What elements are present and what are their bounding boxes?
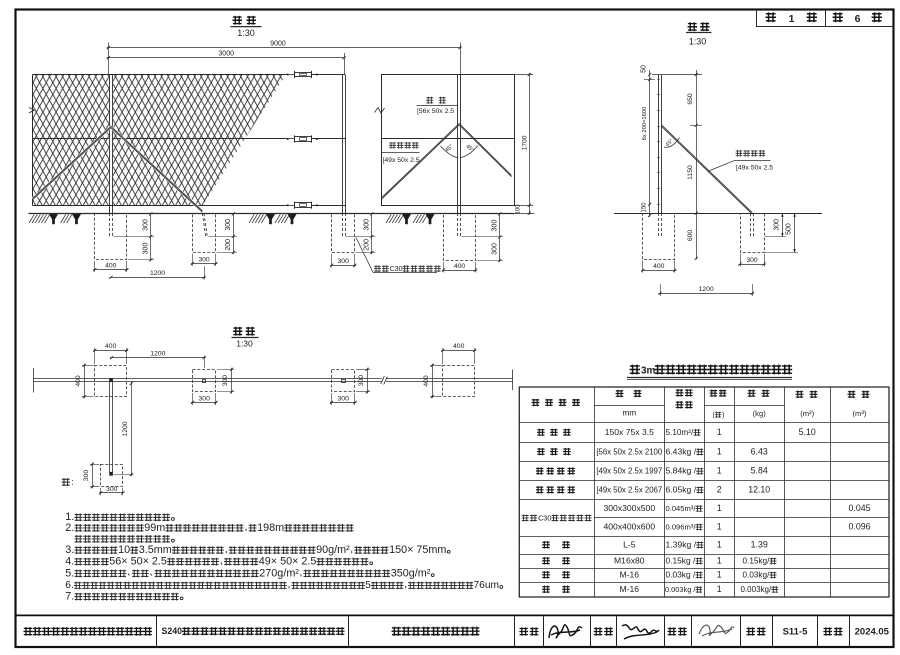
svg-text:5.10m²/: 5.10m²/	[666, 428, 694, 437]
svg-text:[56x 50x 2.5x 2100: [56x 50x 2.5x 2100	[596, 447, 663, 456]
svg-text:0.03kg/: 0.03kg/	[743, 571, 771, 580]
svg-text:49× 50× 2.5: 49× 50× 2.5	[259, 556, 317, 568]
svg-text:1.39: 1.39	[751, 540, 768, 550]
svg-text:5.10: 5.10	[799, 427, 816, 437]
svg-text:5.: 5.	[65, 567, 74, 579]
svg-text:1: 1	[717, 556, 722, 566]
svg-text:100: 100	[515, 204, 521, 215]
svg-text:1: 1	[717, 503, 722, 513]
svg-text:1200: 1200	[150, 270, 165, 277]
svg-text:300x300x500: 300x300x500	[603, 503, 655, 513]
svg-text:10: 10	[118, 544, 130, 556]
svg-text:500: 500	[786, 223, 793, 235]
svg-text:1200: 1200	[150, 351, 165, 358]
svg-text:300: 300	[338, 258, 350, 265]
svg-text:2.: 2.	[65, 522, 74, 534]
svg-text:300: 300	[746, 257, 758, 264]
svg-text:6.43: 6.43	[751, 446, 768, 456]
svg-text:0.003kg /: 0.003kg /	[665, 585, 696, 594]
svg-text:8x 200=1600: 8x 200=1600	[642, 107, 648, 141]
svg-text:350g/m²: 350g/m²	[391, 567, 431, 579]
svg-text:400: 400	[454, 263, 466, 270]
svg-text:6.43kg /: 6.43kg /	[666, 446, 697, 456]
svg-text:400: 400	[105, 343, 117, 350]
svg-text:300: 300	[773, 219, 780, 231]
svg-text:300: 300	[491, 220, 498, 232]
svg-text:L-5: L-5	[623, 540, 636, 550]
svg-text:0.15kg/: 0.15kg/	[743, 557, 771, 566]
svg-text:2024.05: 2024.05	[855, 627, 890, 638]
svg-text:76um: 76um	[474, 580, 499, 591]
svg-text:mm: mm	[622, 408, 636, 418]
svg-text:90g/m²: 90g/m²	[316, 544, 350, 556]
svg-text:M-16: M-16	[620, 570, 640, 580]
svg-text:300: 300	[338, 396, 350, 403]
svg-text:0.045: 0.045	[848, 503, 870, 513]
svg-text:3.: 3.	[65, 544, 74, 556]
svg-text:12.10: 12.10	[748, 485, 770, 495]
svg-text:5.84: 5.84	[751, 466, 768, 476]
svg-text:0.003kg/: 0.003kg/	[741, 585, 772, 594]
svg-text::: :	[71, 477, 73, 487]
svg-text:400: 400	[653, 263, 665, 270]
svg-text:[49x 50x 2.5x 1997: [49x 50x 2.5x 1997	[596, 467, 662, 476]
svg-text:(m³): (m³)	[853, 409, 867, 418]
svg-text:1200: 1200	[699, 286, 714, 293]
svg-text:1150: 1150	[687, 165, 694, 180]
svg-text:300: 300	[363, 219, 370, 231]
svg-text:1: 1	[717, 446, 722, 456]
svg-text:4.: 4.	[65, 556, 74, 568]
svg-text:C30: C30	[390, 266, 403, 273]
svg-text:270g/m²: 270g/m²	[259, 567, 299, 579]
svg-text:3m: 3m	[641, 365, 656, 376]
svg-text:150× 75mm: 150× 75mm	[389, 544, 446, 556]
svg-text:[49x 50x 2.5: [49x 50x 2.5	[383, 157, 420, 164]
svg-text:400: 400	[105, 263, 117, 270]
svg-text:5: 5	[365, 580, 371, 591]
svg-text:400x400x600: 400x400x600	[603, 522, 655, 532]
svg-text:[49x 50x 2.5x 2067: [49x 50x 2.5x 2067	[596, 486, 662, 495]
svg-text:2: 2	[717, 485, 722, 495]
svg-text:300: 300	[142, 219, 149, 231]
svg-text:50: 50	[641, 65, 648, 73]
svg-text:1:30: 1:30	[237, 28, 255, 38]
svg-text:1: 1	[717, 522, 722, 532]
svg-text:7.: 7.	[65, 591, 74, 603]
svg-text:200: 200	[363, 239, 370, 251]
svg-text:M16x80: M16x80	[614, 556, 645, 566]
svg-text:0.045m³/: 0.045m³/	[666, 504, 697, 513]
svg-text:1700: 1700	[521, 135, 528, 150]
svg-text:300: 300	[198, 256, 210, 263]
svg-text:0.096m³/: 0.096m³/	[666, 523, 697, 532]
svg-text:1: 1	[717, 540, 722, 550]
svg-text:): )	[722, 412, 724, 419]
svg-text:0.15kg /: 0.15kg /	[666, 556, 696, 566]
svg-text:300: 300	[358, 375, 365, 387]
svg-text:0.096: 0.096	[848, 522, 870, 532]
svg-text:(m²): (m²)	[800, 409, 814, 418]
svg-text:(kg): (kg)	[753, 409, 767, 418]
svg-text:9000: 9000	[270, 40, 286, 47]
svg-text:6.05kg /: 6.05kg /	[666, 485, 697, 495]
svg-text:400: 400	[423, 375, 430, 387]
svg-text:150: 150	[642, 202, 648, 213]
svg-text:6: 6	[855, 13, 861, 25]
svg-text:1:30: 1:30	[689, 37, 707, 47]
svg-text:200: 200	[225, 239, 232, 251]
svg-text:600: 600	[687, 230, 694, 242]
svg-text:300: 300	[142, 243, 149, 255]
svg-text:1:30: 1:30	[236, 339, 253, 349]
svg-text:[49x 50x 2.5: [49x 50x 2.5	[736, 165, 773, 172]
svg-text:3.5mm: 3.5mm	[139, 544, 172, 556]
svg-text:1: 1	[717, 584, 722, 594]
svg-text:[56x 50x 2.5: [56x 50x 2.5	[417, 108, 454, 115]
svg-text:1.39kg /: 1.39kg /	[666, 540, 697, 550]
svg-text:S11-5: S11-5	[783, 627, 809, 638]
svg-text:1: 1	[789, 13, 795, 25]
svg-text:300: 300	[491, 243, 498, 255]
svg-text:650: 650	[687, 93, 694, 105]
svg-text:300: 300	[106, 486, 118, 493]
svg-text:1: 1	[717, 466, 722, 476]
svg-text:M-16: M-16	[620, 584, 640, 594]
svg-text:400: 400	[75, 375, 82, 387]
svg-text:1200: 1200	[122, 421, 129, 436]
svg-text:400: 400	[453, 343, 465, 350]
svg-text:300: 300	[83, 470, 90, 482]
svg-text:198m: 198m	[257, 522, 284, 534]
svg-text:0.03kg /: 0.03kg /	[666, 570, 696, 580]
svg-text:150x 75x 3.5: 150x 75x 3.5	[605, 427, 654, 437]
svg-text:300: 300	[199, 396, 211, 403]
svg-text:300: 300	[225, 219, 232, 231]
svg-text:300: 300	[222, 375, 229, 387]
svg-text:3000: 3000	[218, 51, 234, 58]
svg-text:C30: C30	[538, 514, 551, 523]
svg-text:56× 50× 2.5: 56× 50× 2.5	[109, 556, 167, 568]
svg-text:5.84kg /: 5.84kg /	[666, 466, 697, 476]
svg-text:1: 1	[717, 427, 722, 437]
svg-text:99m: 99m	[144, 522, 165, 534]
svg-text:S240: S240	[162, 626, 183, 636]
svg-text:1: 1	[717, 570, 722, 580]
